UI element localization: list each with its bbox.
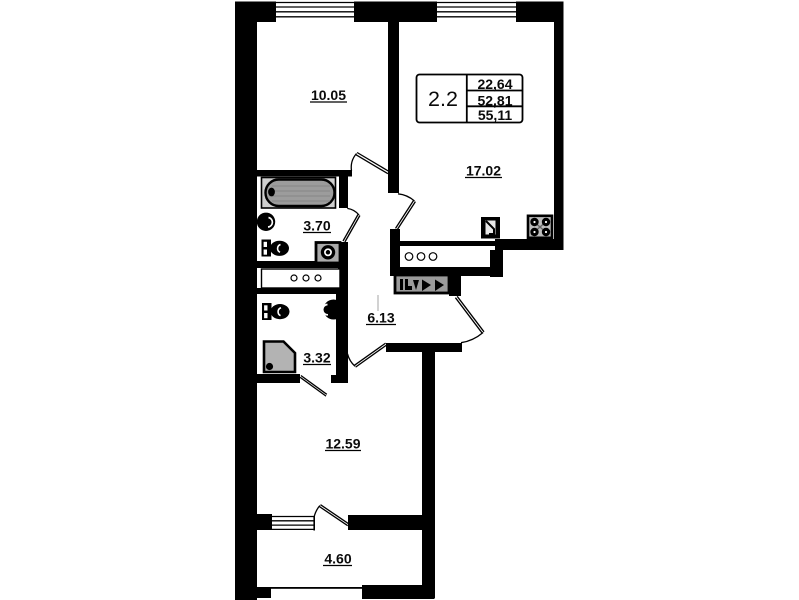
svg-text:22,64: 22,64 <box>477 76 512 92</box>
svg-text:2.2: 2.2 <box>428 87 458 111</box>
svg-text:3.70: 3.70 <box>303 218 330 234</box>
svg-text:55,11: 55,11 <box>478 107 512 123</box>
svg-text:3.32: 3.32 <box>303 350 330 366</box>
svg-text:10.05: 10.05 <box>311 87 346 103</box>
svg-text:17.02: 17.02 <box>466 163 501 179</box>
svg-text:6.13: 6.13 <box>367 310 394 326</box>
svg-text:12.59: 12.59 <box>325 436 360 452</box>
svg-text:4.60: 4.60 <box>324 551 351 567</box>
